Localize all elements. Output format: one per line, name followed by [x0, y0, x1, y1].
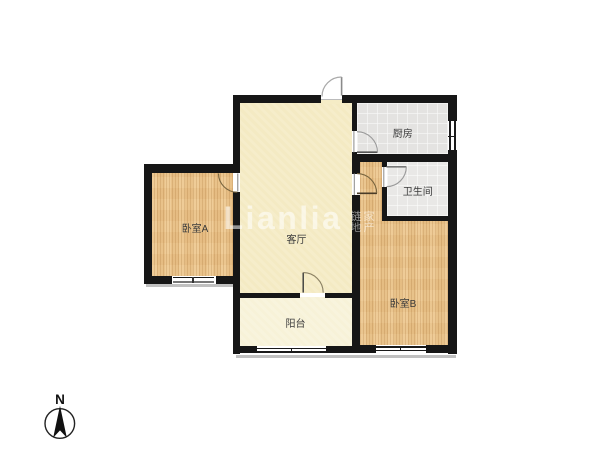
svg-text:N: N	[55, 392, 65, 407]
